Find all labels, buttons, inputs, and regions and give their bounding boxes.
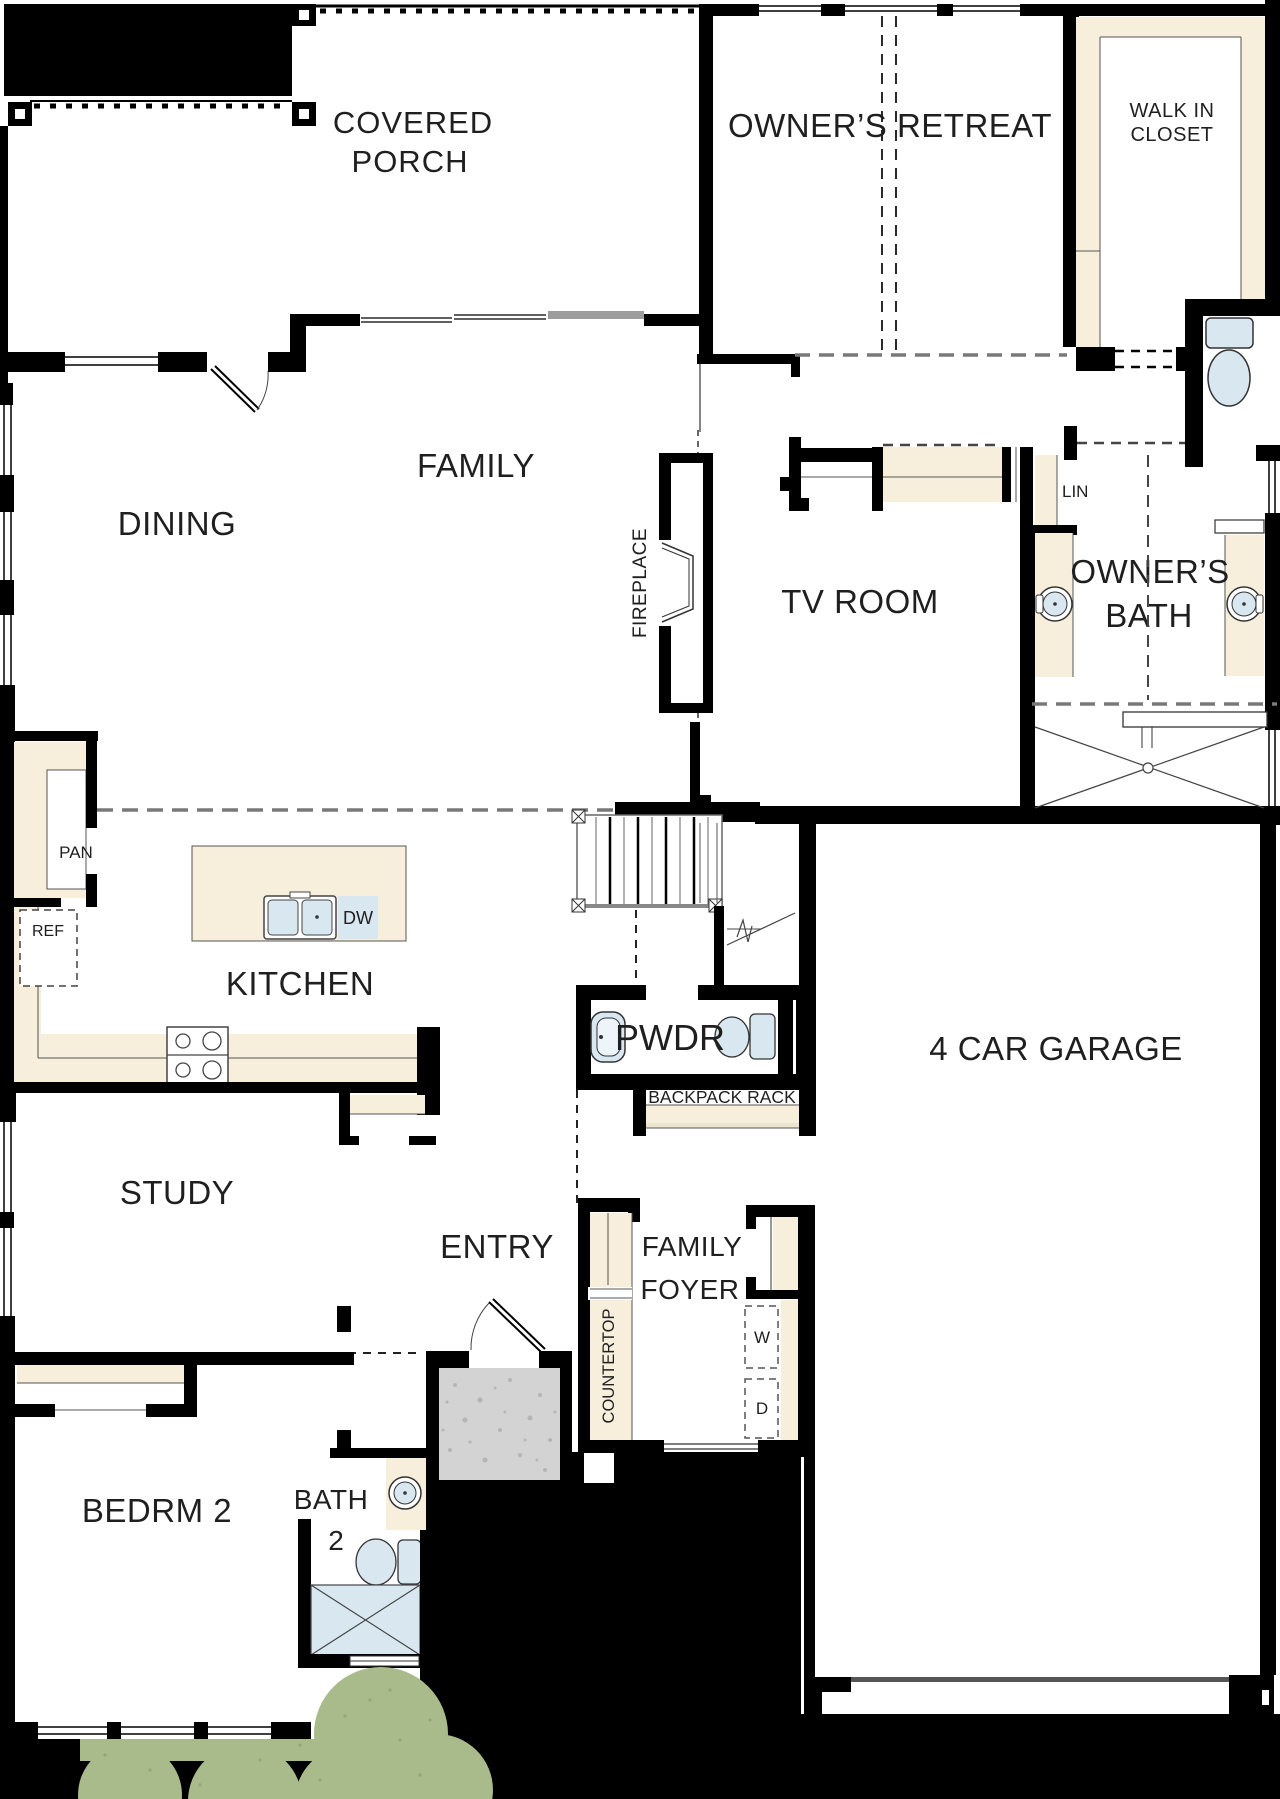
svg-text:PORCH: PORCH <box>352 144 469 179</box>
svg-text:FAMILY: FAMILY <box>642 1231 743 1262</box>
svg-text:FIREPLACE: FIREPLACE <box>630 528 651 638</box>
svg-text:CLOSET: CLOSET <box>1130 124 1213 146</box>
svg-text:BATH: BATH <box>294 1484 369 1515</box>
svg-text:BEDRM 2: BEDRM 2 <box>82 1492 232 1529</box>
svg-text:COUNTERTOP: COUNTERTOP <box>600 1309 618 1424</box>
svg-text:BACKPACK RACK: BACKPACK RACK <box>648 1087 796 1107</box>
svg-text:2: 2 <box>328 1525 344 1556</box>
svg-text:ENTRY: ENTRY <box>440 1228 554 1265</box>
svg-text:PWDR: PWDR <box>615 1017 725 1058</box>
svg-text:FOYER: FOYER <box>641 1274 740 1305</box>
svg-text:PAN: PAN <box>59 843 93 862</box>
svg-text:REF: REF <box>32 923 64 940</box>
svg-text:OWNER’S RETREAT: OWNER’S RETREAT <box>728 107 1052 144</box>
svg-text:4 CAR GARAGE: 4 CAR GARAGE <box>929 1030 1183 1067</box>
svg-text:TV ROOM: TV ROOM <box>781 583 939 620</box>
svg-text:D: D <box>756 1399 768 1418</box>
svg-text:W: W <box>754 1328 770 1347</box>
svg-text:COVERED: COVERED <box>333 105 493 140</box>
svg-text:KITCHEN: KITCHEN <box>226 965 374 1002</box>
svg-text:WALK IN: WALK IN <box>1130 100 1215 122</box>
svg-text:STUDY: STUDY <box>120 1174 234 1211</box>
svg-text:LIN: LIN <box>1062 482 1088 501</box>
svg-text:DINING: DINING <box>118 505 237 542</box>
svg-text:DW: DW <box>343 908 373 928</box>
svg-text:FAMILY: FAMILY <box>417 447 535 484</box>
svg-text:OWNER’S: OWNER’S <box>1070 553 1229 590</box>
